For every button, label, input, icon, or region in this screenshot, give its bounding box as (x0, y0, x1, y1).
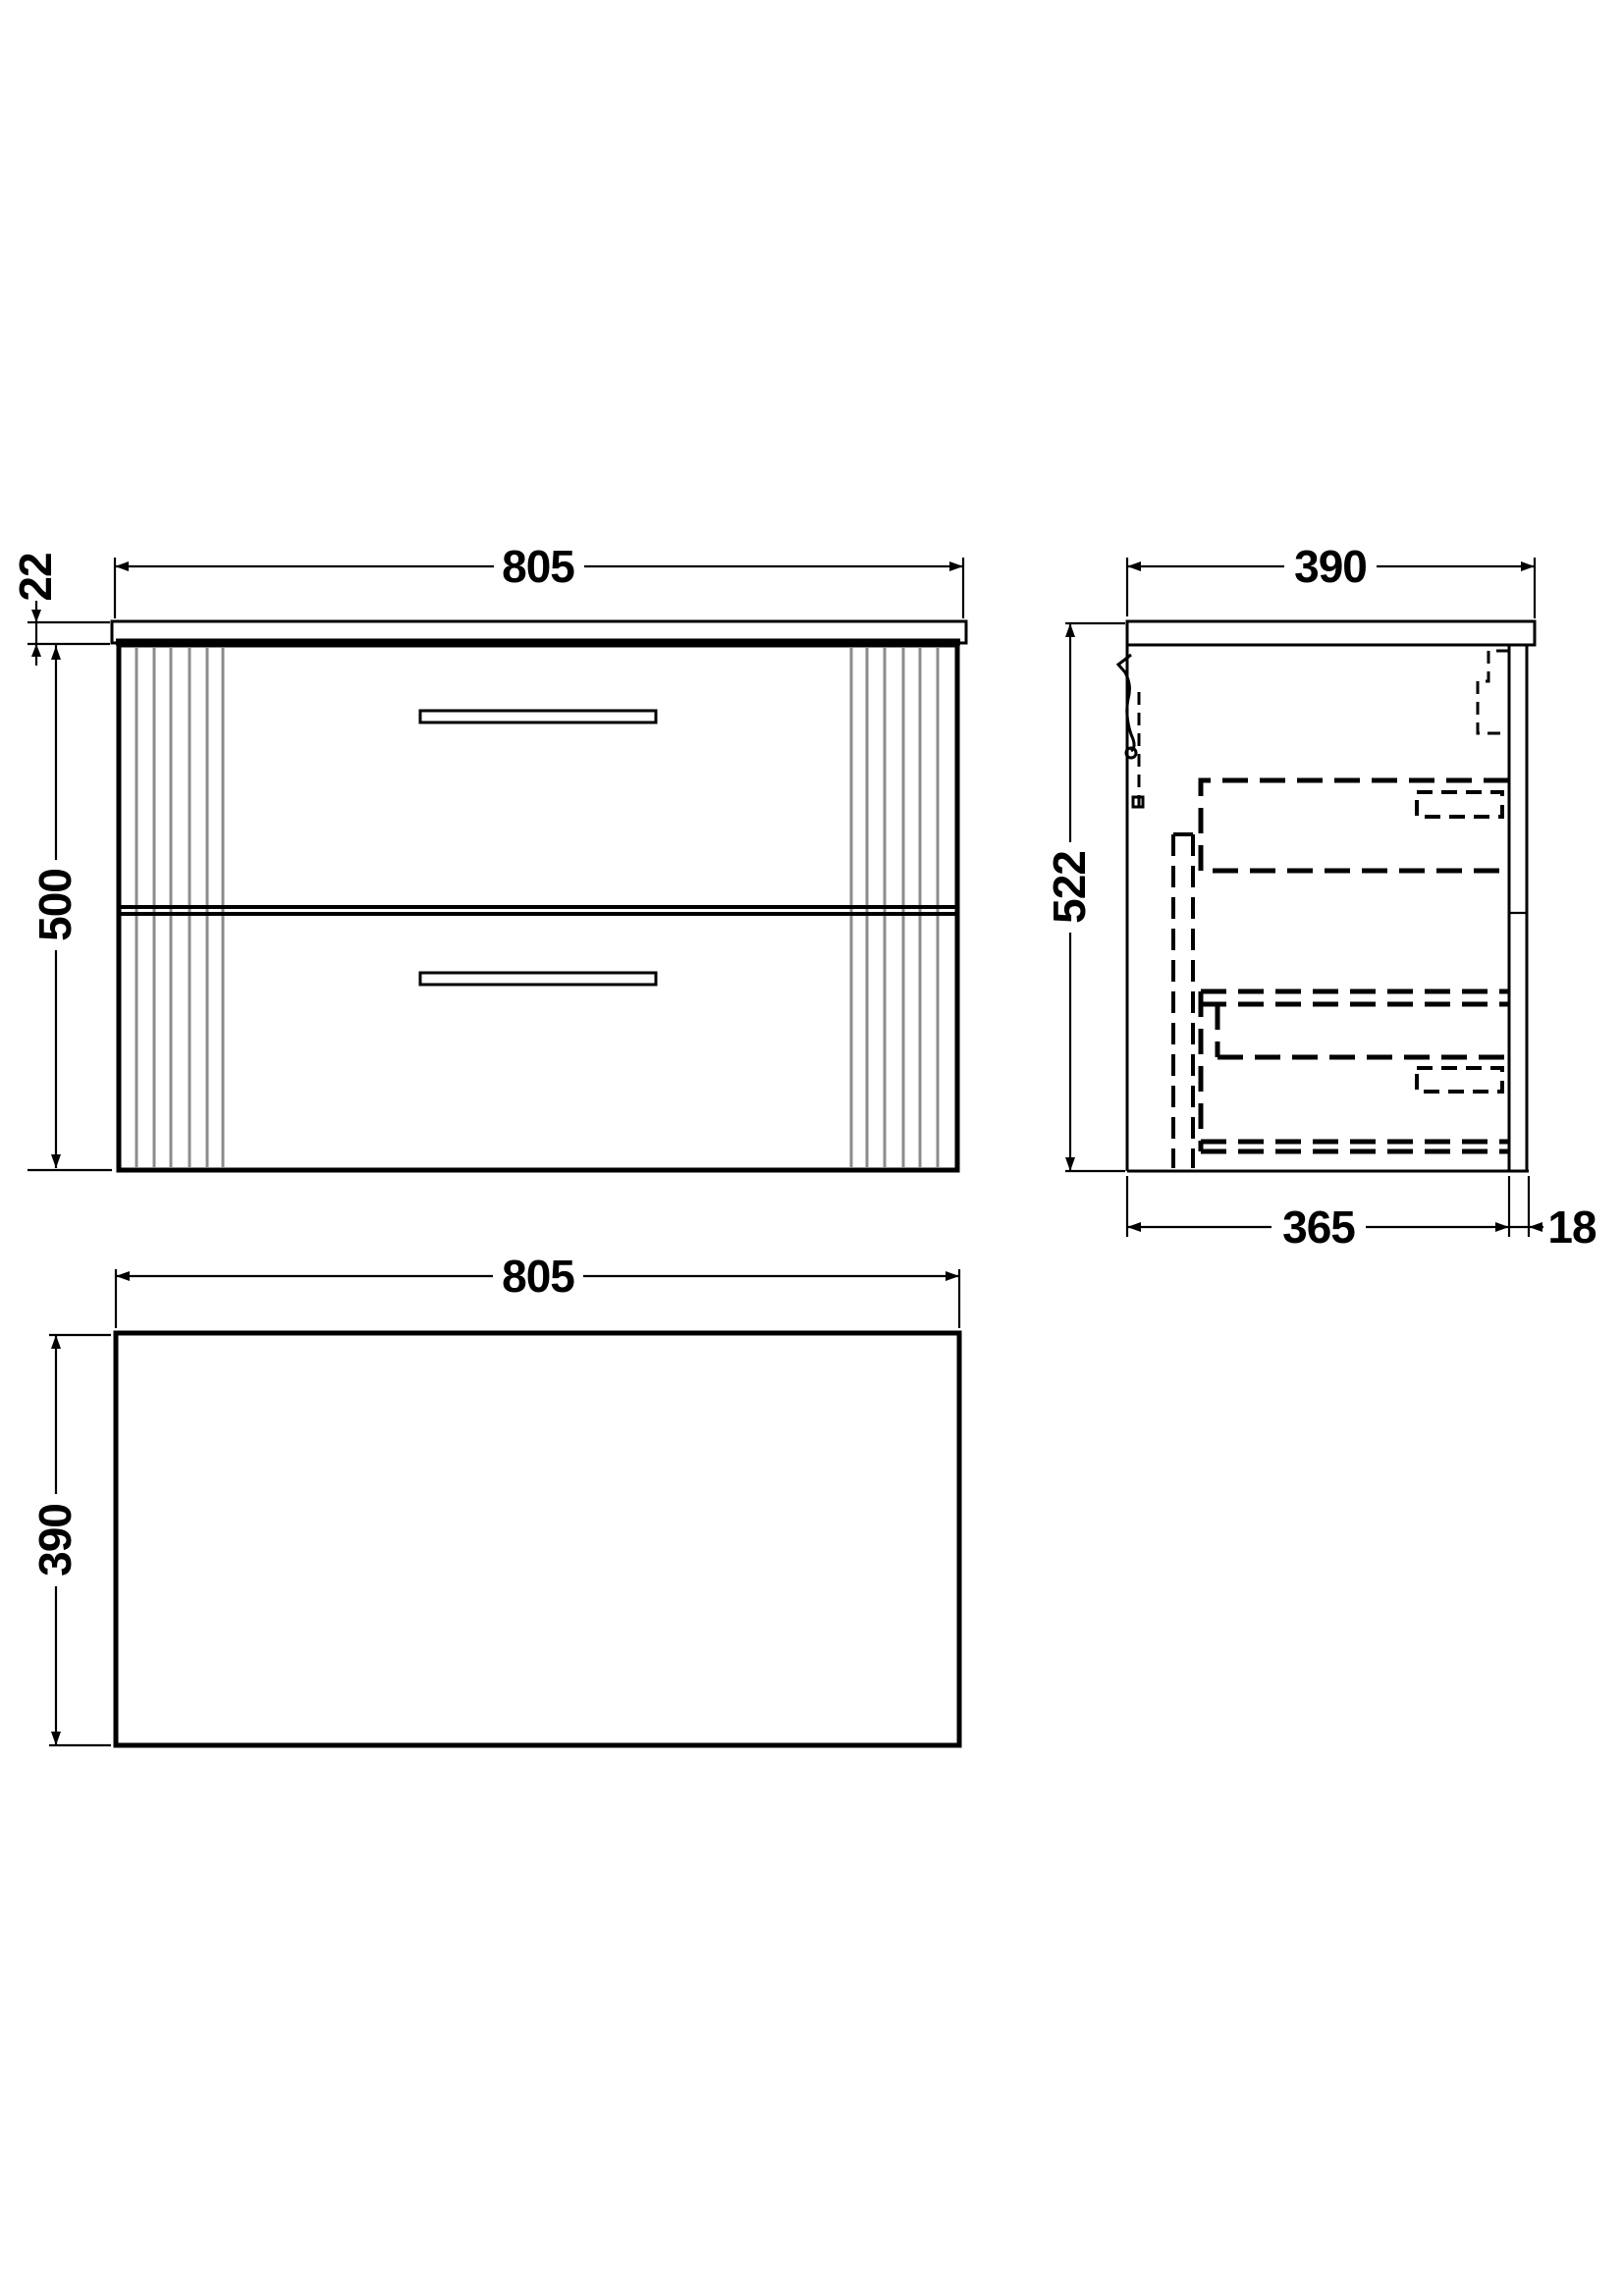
plan-view: 805 390 (29, 1251, 959, 1745)
dim-front-countertop-thickness: 22 (10, 553, 110, 666)
drawer-box-bottom-dashed (1201, 991, 1509, 1151)
drawer-divider (119, 907, 957, 914)
dim-front-countertop-thickness-label: 22 (10, 553, 61, 601)
drawer-runner-bottom (1417, 1068, 1502, 1092)
front-view: 805 22 500 (10, 541, 966, 1170)
handle-profile-end (1126, 748, 1136, 758)
dim-side-height-label: 522 (1044, 851, 1095, 924)
arrowhead (1065, 1157, 1075, 1171)
arrowhead (946, 1271, 959, 1281)
dim-side-carcass-depth-label: 365 (1282, 1201, 1355, 1253)
side-back-panel (1509, 645, 1527, 1171)
dim-plan-width-label: 805 (502, 1251, 574, 1302)
arrowhead (1127, 561, 1141, 571)
handle-profile (1118, 655, 1143, 808)
arrowhead (115, 561, 129, 571)
arrowhead (51, 1732, 61, 1745)
dim-side-back-panel: 18 (1509, 1176, 1596, 1253)
dim-front-width: 805 (115, 541, 963, 618)
arrowhead (51, 646, 61, 660)
drawer-handle-top (420, 711, 656, 722)
dim-side-height: 522 (1044, 623, 1125, 1171)
arrowhead (1127, 1222, 1141, 1232)
plan-outline (116, 1333, 959, 1745)
drawer-front-hidden-edges (1173, 834, 1193, 1168)
dim-front-width-label: 805 (502, 541, 574, 592)
arrowhead (51, 1335, 61, 1349)
drawer-runner-top (1417, 792, 1502, 817)
side-countertop (1127, 621, 1535, 645)
wall-bracket-dashed-outline (1478, 651, 1509, 733)
dim-front-height: 500 (27, 645, 112, 1170)
dim-side-back-panel-label: 18 (1547, 1201, 1596, 1253)
dim-side-depth: 390 (1127, 541, 1535, 618)
drawer-box-top-dashed (1201, 780, 1509, 871)
arrowhead (51, 1154, 61, 1168)
technical-drawing-page: 805 22 500 (0, 0, 1623, 2296)
arrowhead (116, 1271, 130, 1281)
arrowhead (1495, 1222, 1509, 1232)
dim-plan-depth: 390 (29, 1335, 111, 1745)
arrowhead (949, 561, 963, 571)
drawer-box-outline (1201, 780, 1509, 871)
arrowhead (1521, 561, 1535, 571)
dim-plan-depth-label: 390 (29, 1504, 81, 1576)
cabinet-drawing-canvas: 805 22 500 (0, 0, 1623, 2296)
dim-side-depth-label: 390 (1294, 541, 1367, 592)
dim-plan-width: 805 (116, 1251, 959, 1328)
arrowhead (31, 644, 41, 657)
drawer-handle-bottom (420, 973, 656, 985)
dim-front-height-label: 500 (29, 869, 81, 941)
arrowhead (1529, 1222, 1542, 1232)
arrowhead (31, 610, 41, 622)
arrowhead (1065, 623, 1075, 637)
side-view: 390 522 365 18 (1044, 541, 1596, 1253)
dim-side-carcass-depth: 365 (1127, 1176, 1509, 1253)
